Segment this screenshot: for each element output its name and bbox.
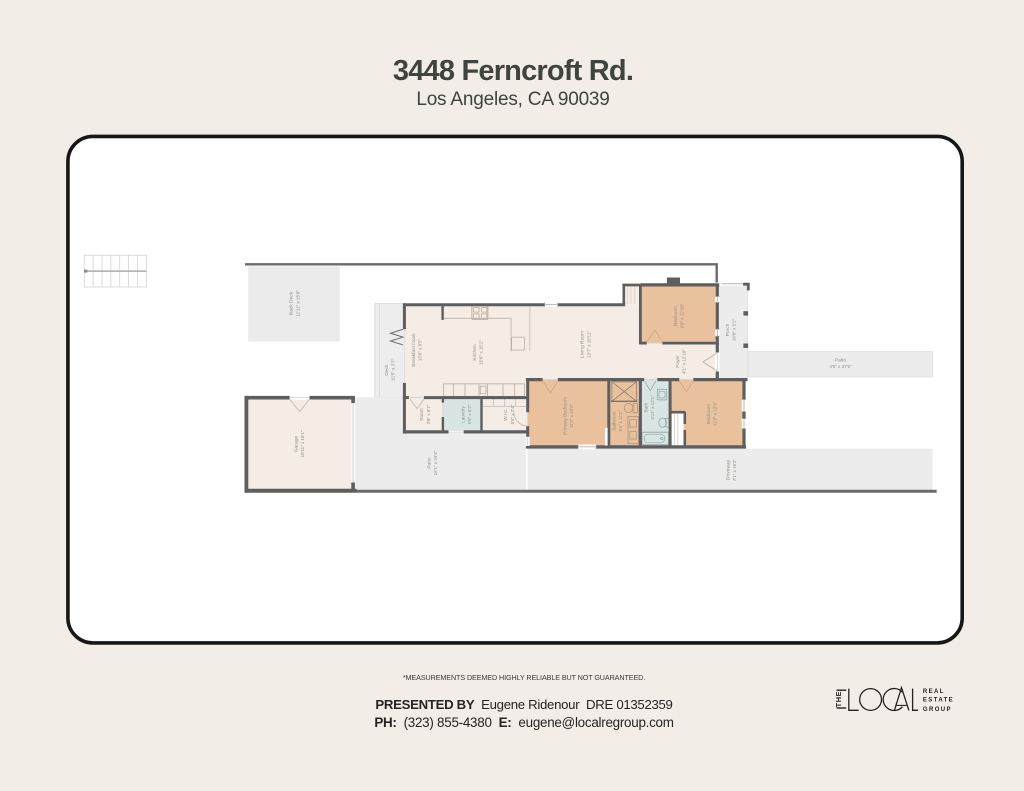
svg-text:Living Room12'7" x 18'11": Living Room12'7" x 18'11": [580, 331, 592, 358]
svg-text:Driveway7'1" x 76'2": Driveway7'1" x 76'2": [725, 459, 737, 482]
svg-text:REAL: REAL: [923, 689, 945, 695]
svg-text:Bedroom9'9" x 12'10": Bedroom9'9" x 12'10": [673, 303, 685, 328]
svg-text:Bedroom11'3" x 12'9": Bedroom11'3" x 12'9": [706, 401, 718, 426]
svg-text:Bathroom5'4" x 12'1": Bathroom5'4" x 12'1": [612, 410, 624, 431]
svg-text:Laundry5'8" x 6'2": Laundry5'8" x 6'2": [460, 404, 472, 424]
svg-text:Back Deck12'11" x 15'8": Back Deck12'11" x 15'8": [289, 290, 301, 317]
